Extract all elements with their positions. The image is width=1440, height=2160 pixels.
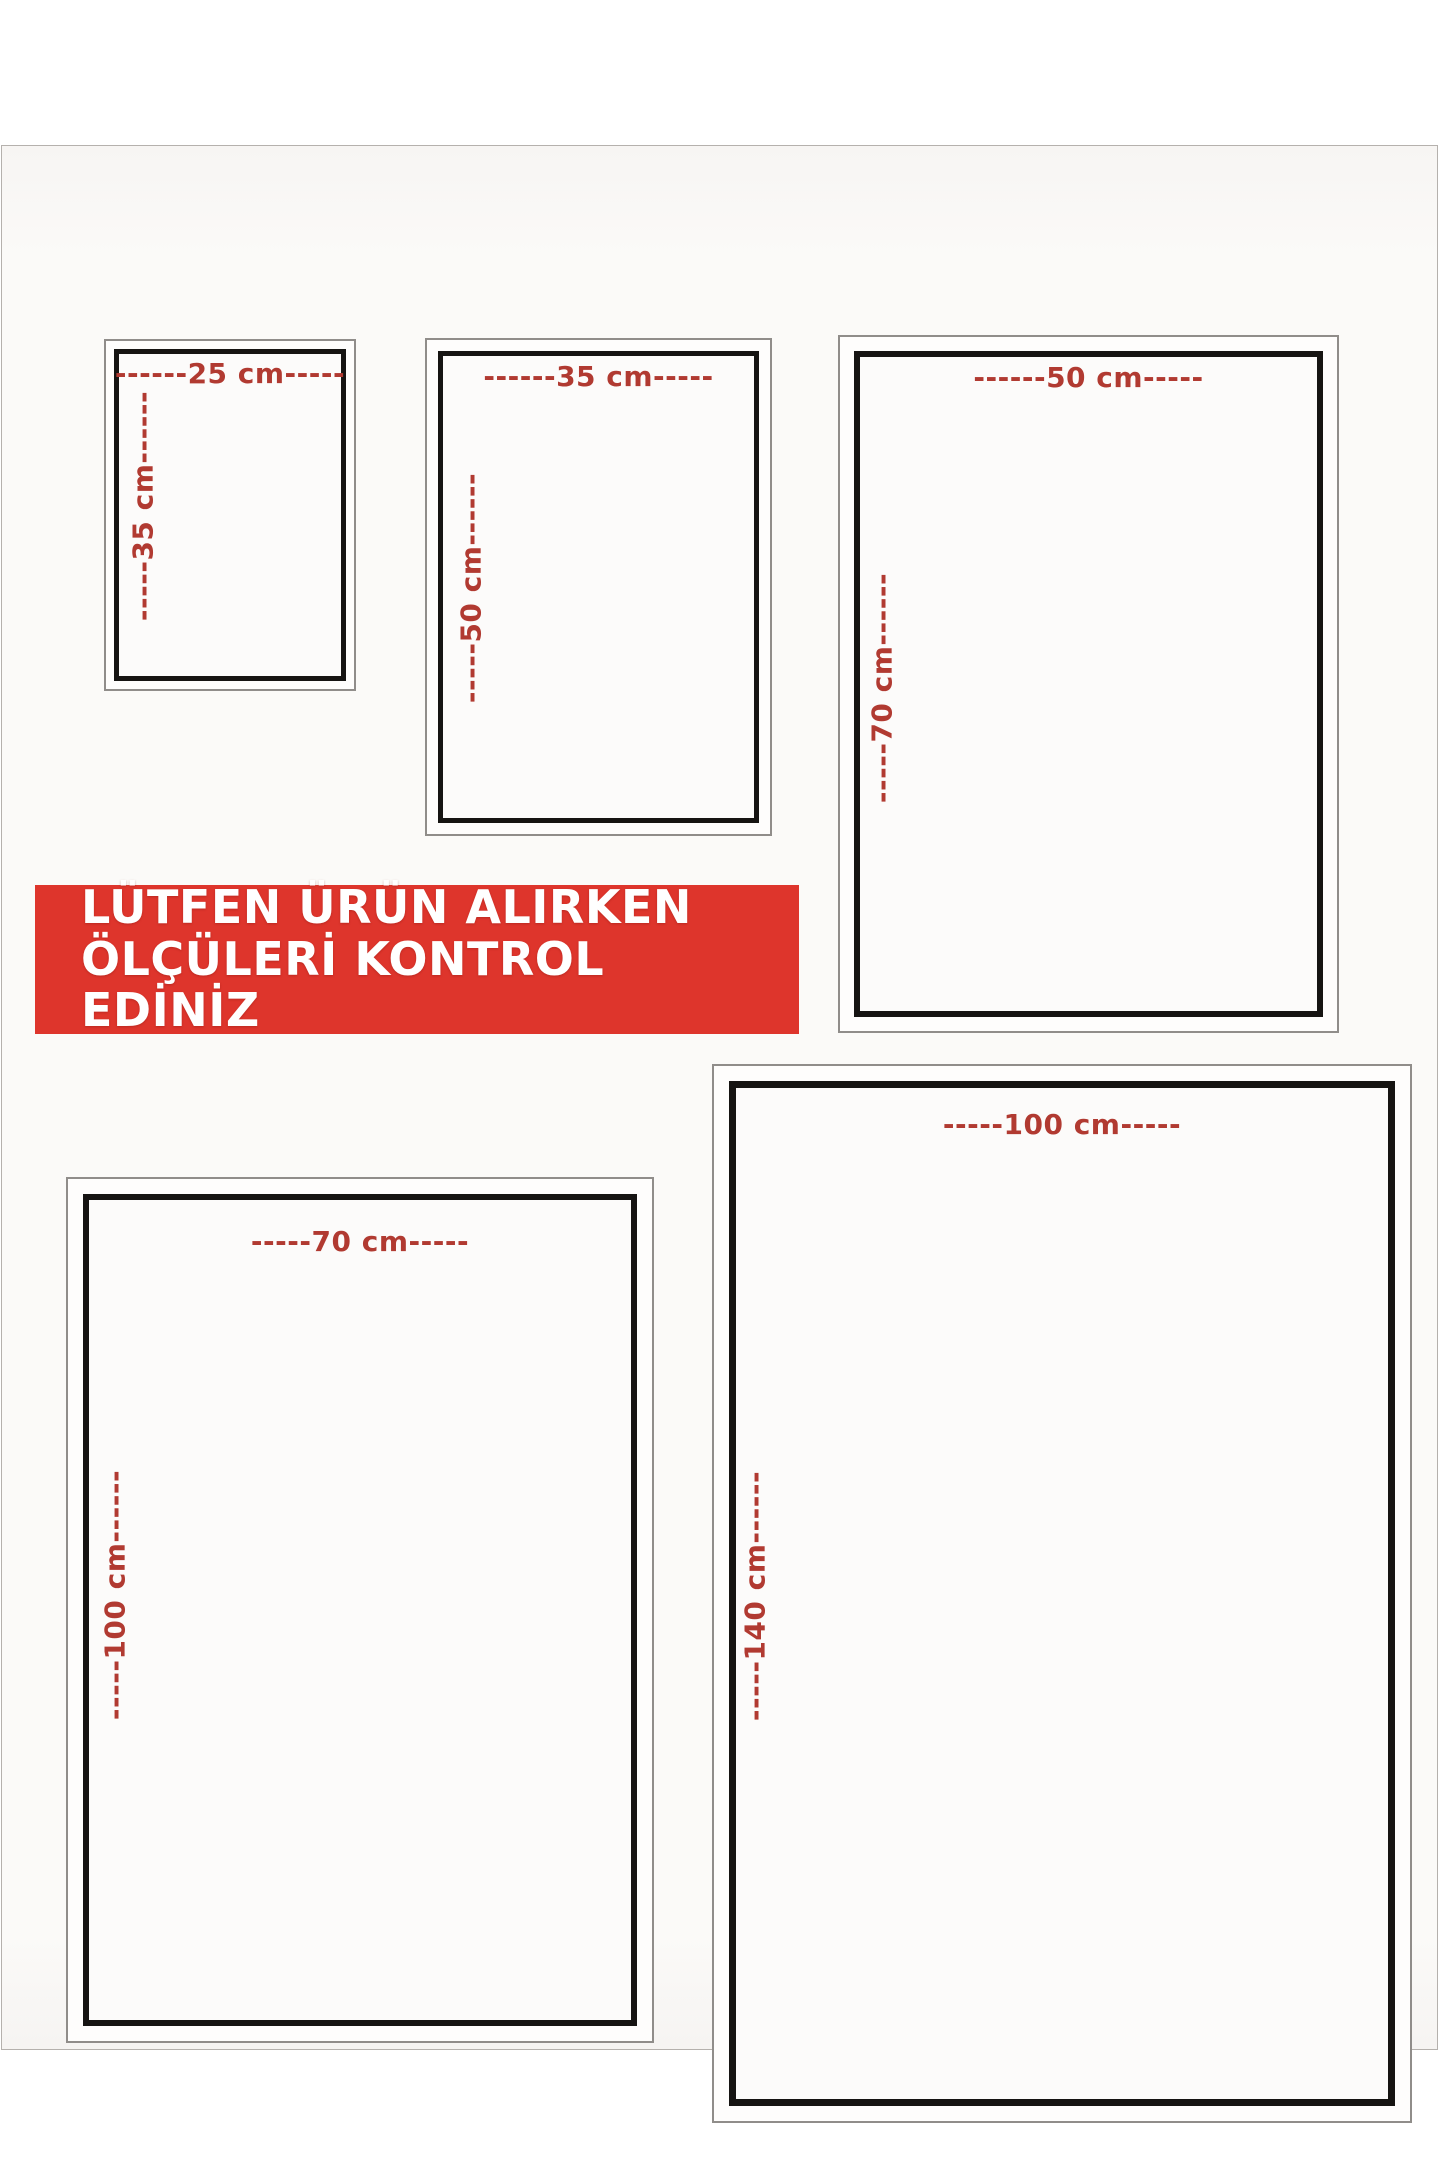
- warning-banner-line-2: ÖLÇÜLERİ KONTROL EDİNİZ: [81, 934, 799, 1037]
- height-label-35cm: -----35 cm------: [127, 391, 160, 621]
- warning-banner: LÜTFEN ÜRÜN ALIRKEN ÖLÇÜLERİ KONTROL EDİ…: [35, 885, 799, 1034]
- height-label-70cm: -----70 cm------: [866, 573, 899, 803]
- warning-banner-line-1: LÜTFEN ÜRÜN ALIRKEN: [81, 882, 799, 934]
- size-box-70x100-frame: [83, 1194, 637, 2026]
- height-label-140cm: -----140 cm------: [739, 1471, 772, 1721]
- width-label-25cm: ------25 cm-----: [115, 357, 345, 390]
- width-label-50cm: ------50 cm-----: [973, 361, 1203, 394]
- size-box-100x140: -----100 cm----- -----140 cm------: [712, 1064, 1412, 2123]
- width-label-100cm: -----100 cm-----: [943, 1108, 1181, 1141]
- width-label-70cm: -----70 cm-----: [251, 1225, 469, 1258]
- size-box-35x50: ------35 cm----- -----50 cm------: [425, 338, 772, 836]
- height-label-100cm: -----100 cm------: [99, 1470, 132, 1720]
- size-box-50x70: ------50 cm----- -----70 cm------: [838, 335, 1339, 1033]
- height-label-50cm: -----50 cm------: [455, 473, 488, 703]
- size-box-50x70-frame: [854, 351, 1323, 1017]
- width-label-35cm: ------35 cm-----: [483, 360, 713, 393]
- size-guide-image: ------25 cm----- -----35 cm------ ------…: [0, 0, 1440, 2160]
- photo-background: ------25 cm----- -----35 cm------ ------…: [1, 145, 1438, 2050]
- size-box-25x35: ------25 cm----- -----35 cm------: [104, 339, 356, 691]
- size-box-70x100: -----70 cm----- -----100 cm------: [66, 1177, 654, 2043]
- size-box-100x140-frame: [729, 1081, 1395, 2106]
